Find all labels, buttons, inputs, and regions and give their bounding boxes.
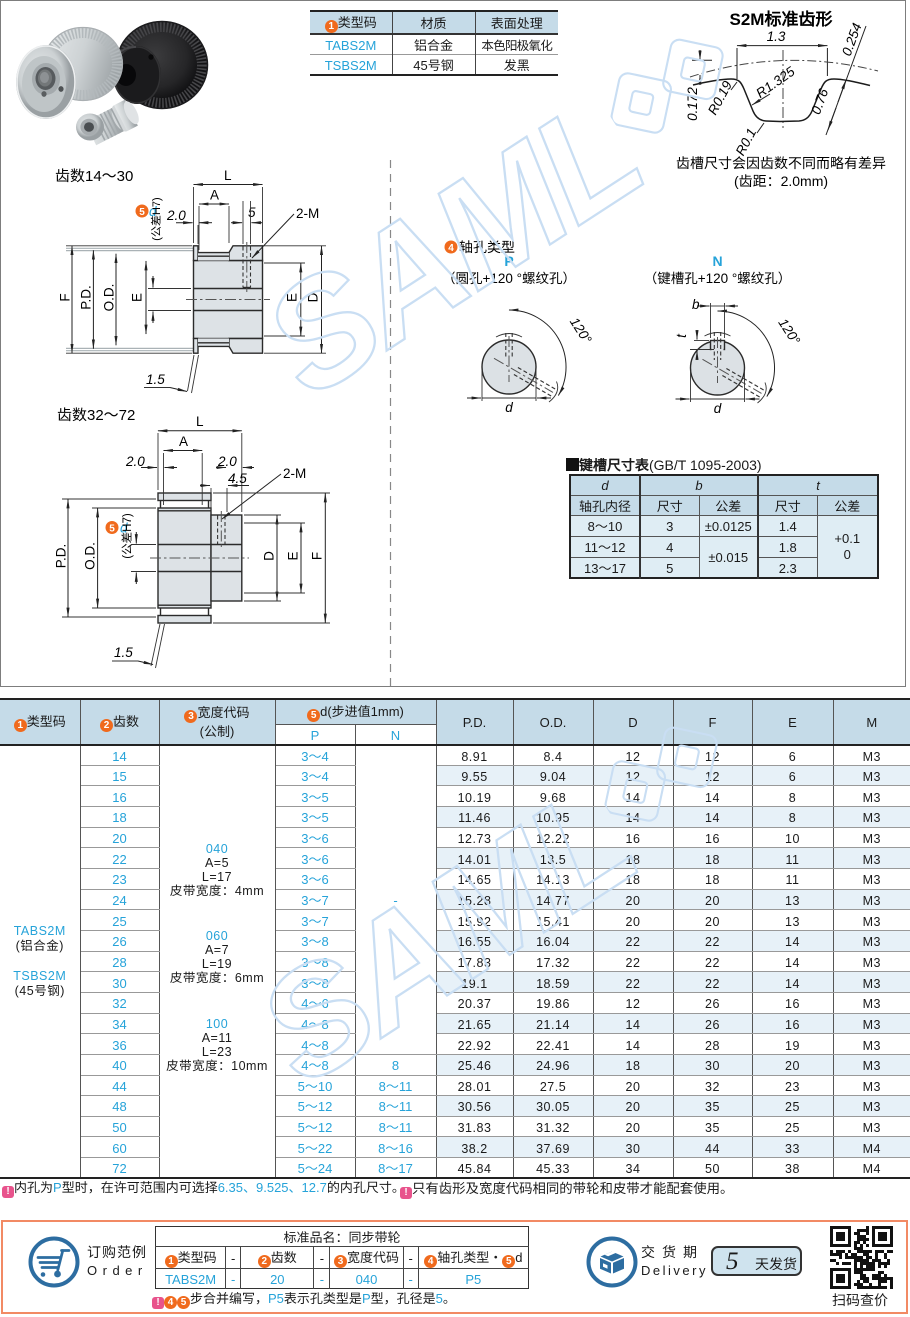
svg-text:E: E [281,293,301,302]
svg-text:齿数32～72: 齿数32～72 [57,404,135,425]
svg-text:（圆孔+120 °螺纹孔）: （圆孔+120 °螺纹孔） [442,267,576,287]
svg-text:E: E [126,293,146,302]
svg-text:0.254: 0.254 [835,20,865,59]
svg-text:t: t [670,333,690,338]
svg-text:D: D [302,292,322,302]
svg-text:2-M: 2-M [283,462,306,482]
svg-text:E: E [282,551,302,560]
svg-text:5: 5 [109,524,115,535]
svg-text:P.D.: P.D. [75,285,95,310]
svg-text:L: L [224,164,232,184]
svg-text:0.76: 0.76 [804,85,832,117]
svg-text:d: d [714,397,722,417]
svg-text:齿数14～30: 齿数14～30 [55,165,133,186]
svg-text:4: 4 [448,243,454,254]
svg-text:A: A [179,430,188,450]
svg-text:R1.325: R1.325 [751,60,799,102]
svg-text:F: F [306,552,326,560]
svg-text:1.5: 1.5 [146,368,165,388]
svg-text:5: 5 [139,207,145,218]
svg-text:P.D.: P.D. [50,544,70,569]
svg-text:d: d [505,396,513,416]
svg-text:A: A [210,184,219,204]
svg-text:O.D.: O.D. [98,284,118,312]
svg-text:L: L [196,410,204,430]
svg-text:1.5: 1.5 [114,641,133,661]
svg-text:(公差H7): (公差H7) [119,513,135,559]
svg-text:D: D [258,551,278,561]
svg-text:4.5: 4.5 [228,467,247,487]
svg-text:120°: 120° [775,314,807,349]
svg-text:5: 5 [248,201,256,221]
svg-text:120°: 120° [566,313,598,348]
svg-text:2-M: 2-M [296,202,319,222]
svg-text:0.172: 0.172 [681,87,701,121]
svg-text:(公差H7): (公差H7) [148,197,164,240]
svg-text:F: F [54,293,74,301]
svg-text:b: b [692,293,700,313]
svg-text:O.D.: O.D. [79,542,99,570]
svg-text:1.3: 1.3 [767,25,786,45]
svg-text:（键槽孔+120 °螺纹孔）: （键槽孔+120 °螺纹孔） [644,267,792,287]
svg-text:2.0: 2.0 [166,204,186,224]
